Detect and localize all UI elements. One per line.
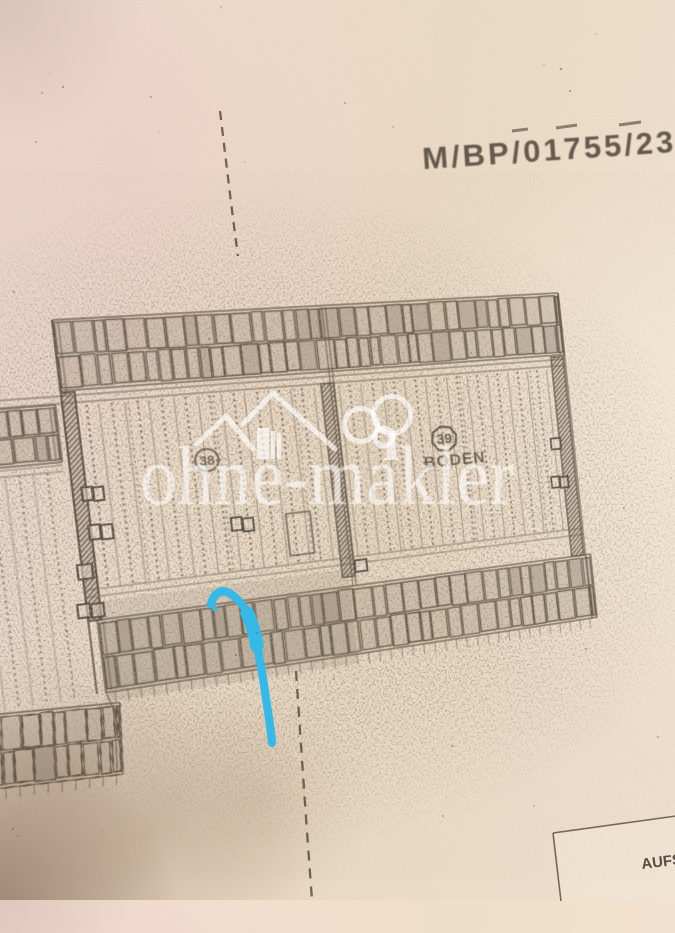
svg-text:ohne-makler: ohne-makler: [140, 430, 514, 523]
